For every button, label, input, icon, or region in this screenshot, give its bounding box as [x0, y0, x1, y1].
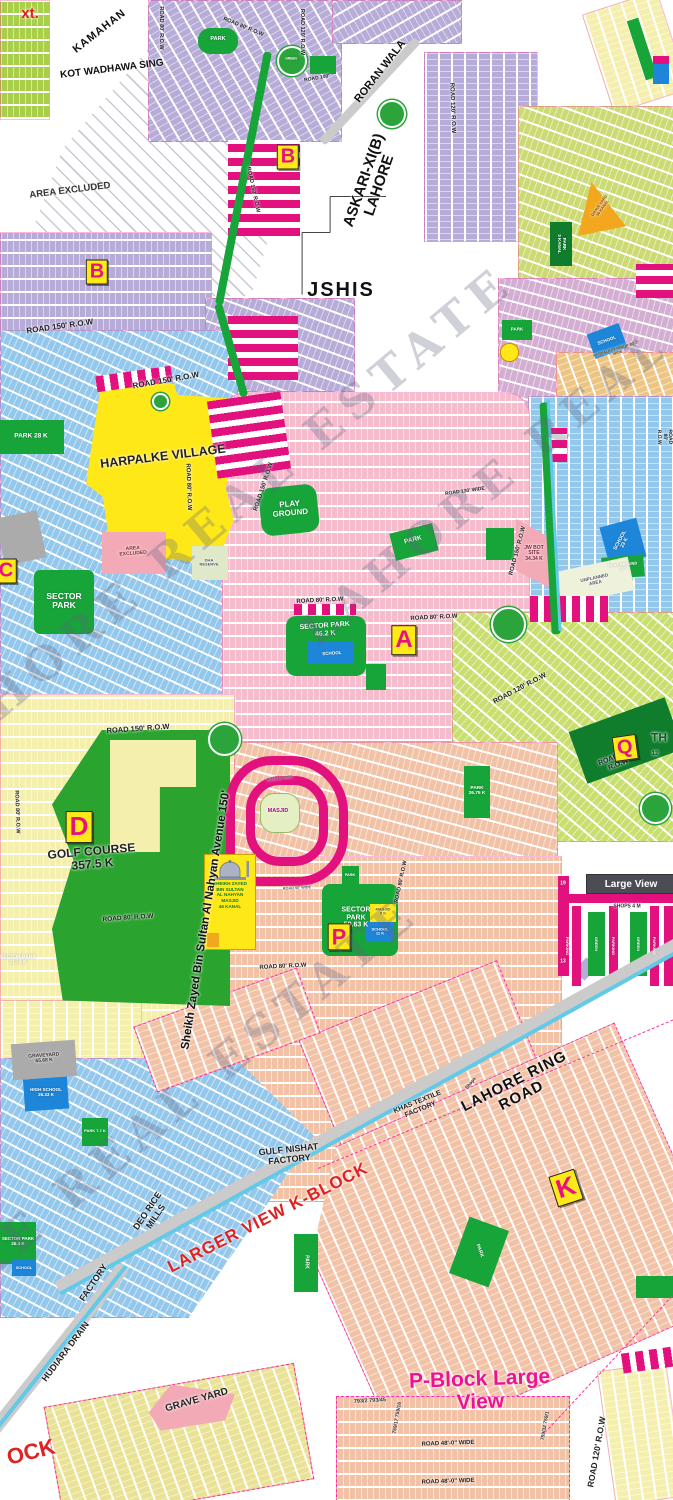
map-label: TH: [651, 732, 667, 745]
map-label: PARK 26.75 K: [469, 786, 486, 796]
topright-blue-small: [653, 62, 669, 84]
park-top-east: [310, 56, 336, 74]
askari-boundary-3: [302, 232, 330, 233]
park-a-south: [366, 664, 386, 690]
roundabout-roran-wala: [378, 100, 406, 128]
map-label: GREEN: [285, 57, 296, 60]
askari-boundary-4: [301, 233, 302, 295]
map-label: PARK: [303, 1255, 308, 1269]
lahore-real-estate-scheme-map: SHEIKH ZAYED BIN SULTAN AL NAHYAN MASJID…: [0, 0, 673, 1500]
map-label: OCK: [4, 1435, 57, 1470]
yellow-smiley: [500, 343, 519, 362]
map-label: HIGH SCHOOL 26.33 K: [30, 1088, 62, 1098]
topright-magenta-small: [653, 56, 669, 64]
map-label: 12: [652, 751, 659, 757]
roundabout-avenue-east: [640, 793, 671, 824]
map-label: ROAD 80' R.O.W: [12, 790, 19, 833]
map-label: ROAD 80' R.O.W: [656, 429, 673, 445]
map-label: RORAN WALA: [353, 38, 409, 105]
map-label: ROAD 80' R.O.W: [157, 6, 163, 49]
map-label: ASKARI-XI(B) LAHORE: [341, 132, 403, 235]
plots-b-upper-east: [332, 0, 462, 44]
map-label: 19: [560, 881, 566, 886]
map-label: JSHIS: [307, 280, 375, 302]
sheikh-zayed-masjid-label: SHEIKH ZAYED BIN SULTAN AL NAHYAN MASJID…: [213, 881, 247, 910]
map-label: ROAD 120' R.O.W: [586, 1416, 607, 1488]
map-label: GREEN: [594, 937, 598, 951]
map-label: PARK: [511, 328, 523, 333]
map-label: GRAVEYARD 65.68 K: [28, 1053, 60, 1066]
map-label: P-Block Large View: [383, 1365, 577, 1417]
block-badge-q: Q: [612, 734, 639, 762]
shops-bar-top: [560, 894, 673, 903]
askari-boundary-2: [329, 197, 330, 233]
roundabout-a-q: [491, 607, 526, 642]
map-label: PARK: [210, 37, 225, 43]
map-label: GREEN: [636, 937, 640, 951]
block-badge-a: A: [391, 625, 416, 655]
map-label: PARKING: [565, 937, 569, 955]
block-badge-d: D: [66, 811, 93, 843]
map-label: SHOPS 4 M: [613, 904, 640, 909]
magenta-cluster-east: [636, 264, 673, 298]
map-label: 13: [560, 959, 566, 964]
block-badge-b: B: [277, 145, 299, 170]
large-view-header: Large View: [586, 874, 673, 894]
roundabout-harpalke-small: [152, 393, 169, 410]
map-label: ROAD 120' R.O.W: [298, 9, 304, 55]
roundabout-road150-d: [208, 723, 241, 756]
map-label: MASJID: [268, 809, 289, 815]
map-label: PARKING: [652, 937, 656, 955]
map-label: PARK 28 K: [14, 432, 47, 439]
plots-yellow-southeast: [597, 1362, 673, 1500]
park-k-northeast: [636, 1276, 673, 1298]
map-label: SECTOR PARK 31.74 K: [0, 956, 36, 967]
parking-bar-1: [572, 906, 581, 986]
plots-yellow-dotted-south: [44, 1363, 315, 1500]
map-label: KAMAHAN: [71, 8, 129, 57]
block-badge-b: B: [86, 260, 108, 285]
park-northeast-a: [486, 528, 514, 560]
map-label: PARK 3 KANAL: [556, 234, 566, 254]
block-badge-c: C: [0, 559, 17, 584]
map-label: PARK: [345, 873, 355, 877]
map-label: JW BOT SITE 34.34 K: [524, 546, 543, 562]
map-label: xt.: [21, 6, 39, 22]
map-label: PARKING: [611, 937, 615, 955]
magenta-row-east-mid: [530, 596, 608, 622]
